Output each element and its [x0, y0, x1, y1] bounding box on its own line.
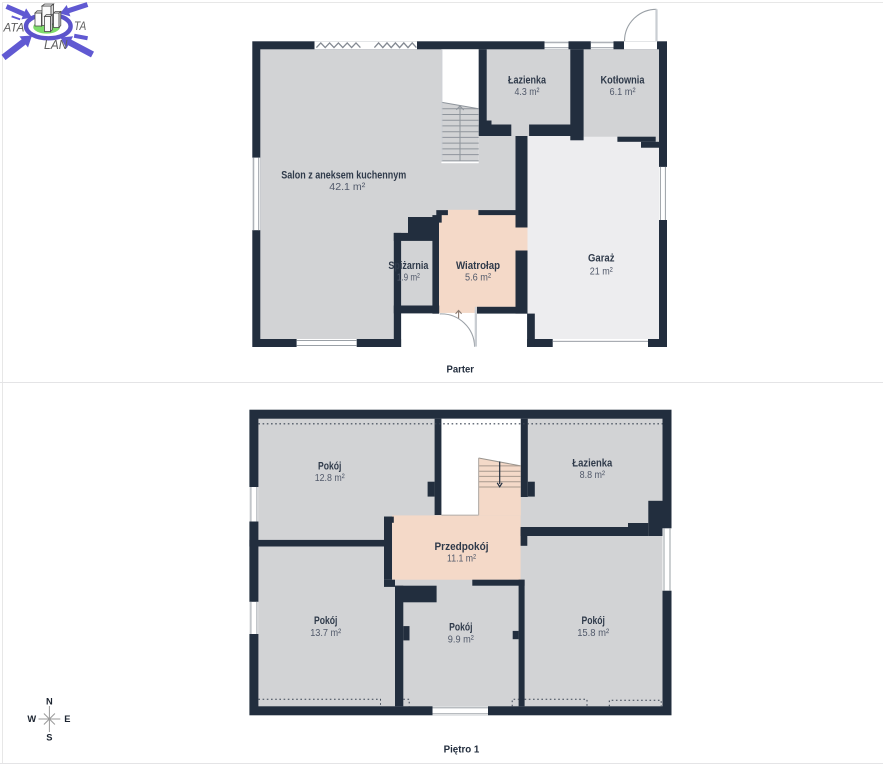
svg-text:E: E	[64, 714, 70, 724]
svg-text:S: S	[46, 733, 52, 743]
svg-text:6.1 m²: 6.1 m²	[610, 87, 637, 98]
svg-text:11.1 m²: 11.1 m²	[447, 554, 477, 565]
svg-text:8.8 m²: 8.8 m²	[580, 470, 606, 481]
svg-text:LAN: LAN	[44, 38, 68, 52]
svg-text:Garaż: Garaż	[588, 253, 615, 265]
svg-text:5.6 m²: 5.6 m²	[465, 273, 492, 284]
svg-text:Łazienka: Łazienka	[508, 75, 547, 87]
svg-text:ATA: ATA	[2, 23, 24, 35]
svg-text:Łazienka: Łazienka	[572, 457, 613, 469]
svg-text:1.9 m²: 1.9 m²	[397, 273, 421, 284]
svg-text:Kotłownia: Kotłownia	[601, 75, 646, 87]
svg-text:15.8 m²: 15.8 m²	[577, 628, 610, 639]
svg-text:W: W	[27, 714, 36, 724]
svg-text:Spiżarnia: Spiżarnia	[388, 260, 429, 272]
svg-text:Pokój: Pokój	[318, 461, 341, 473]
svg-text:9.9 m²: 9.9 m²	[448, 635, 475, 646]
svg-text:Pokój: Pokój	[314, 615, 337, 627]
svg-text:Parter: Parter	[447, 365, 475, 376]
svg-text:Salon z aneksem kuchennym: Salon z aneksem kuchennym	[281, 170, 406, 182]
svg-text:TA: TA	[74, 21, 86, 33]
svg-text:Pokój: Pokój	[449, 622, 472, 634]
svg-text:Piętro 1: Piętro 1	[444, 745, 480, 756]
svg-text:42.1 m²: 42.1 m²	[329, 182, 366, 193]
svg-text:4.3 m²: 4.3 m²	[515, 87, 541, 98]
svg-text:21 m²: 21 m²	[590, 267, 614, 278]
svg-text:Wiatrołap: Wiatrołap	[456, 260, 500, 272]
svg-text:Pokój: Pokój	[582, 615, 605, 627]
svg-text:13.7 m²: 13.7 m²	[310, 628, 342, 639]
svg-text:N: N	[46, 697, 53, 707]
svg-text:Przedpokój: Przedpokój	[435, 541, 489, 553]
svg-text:12.8 m²: 12.8 m²	[315, 473, 346, 484]
